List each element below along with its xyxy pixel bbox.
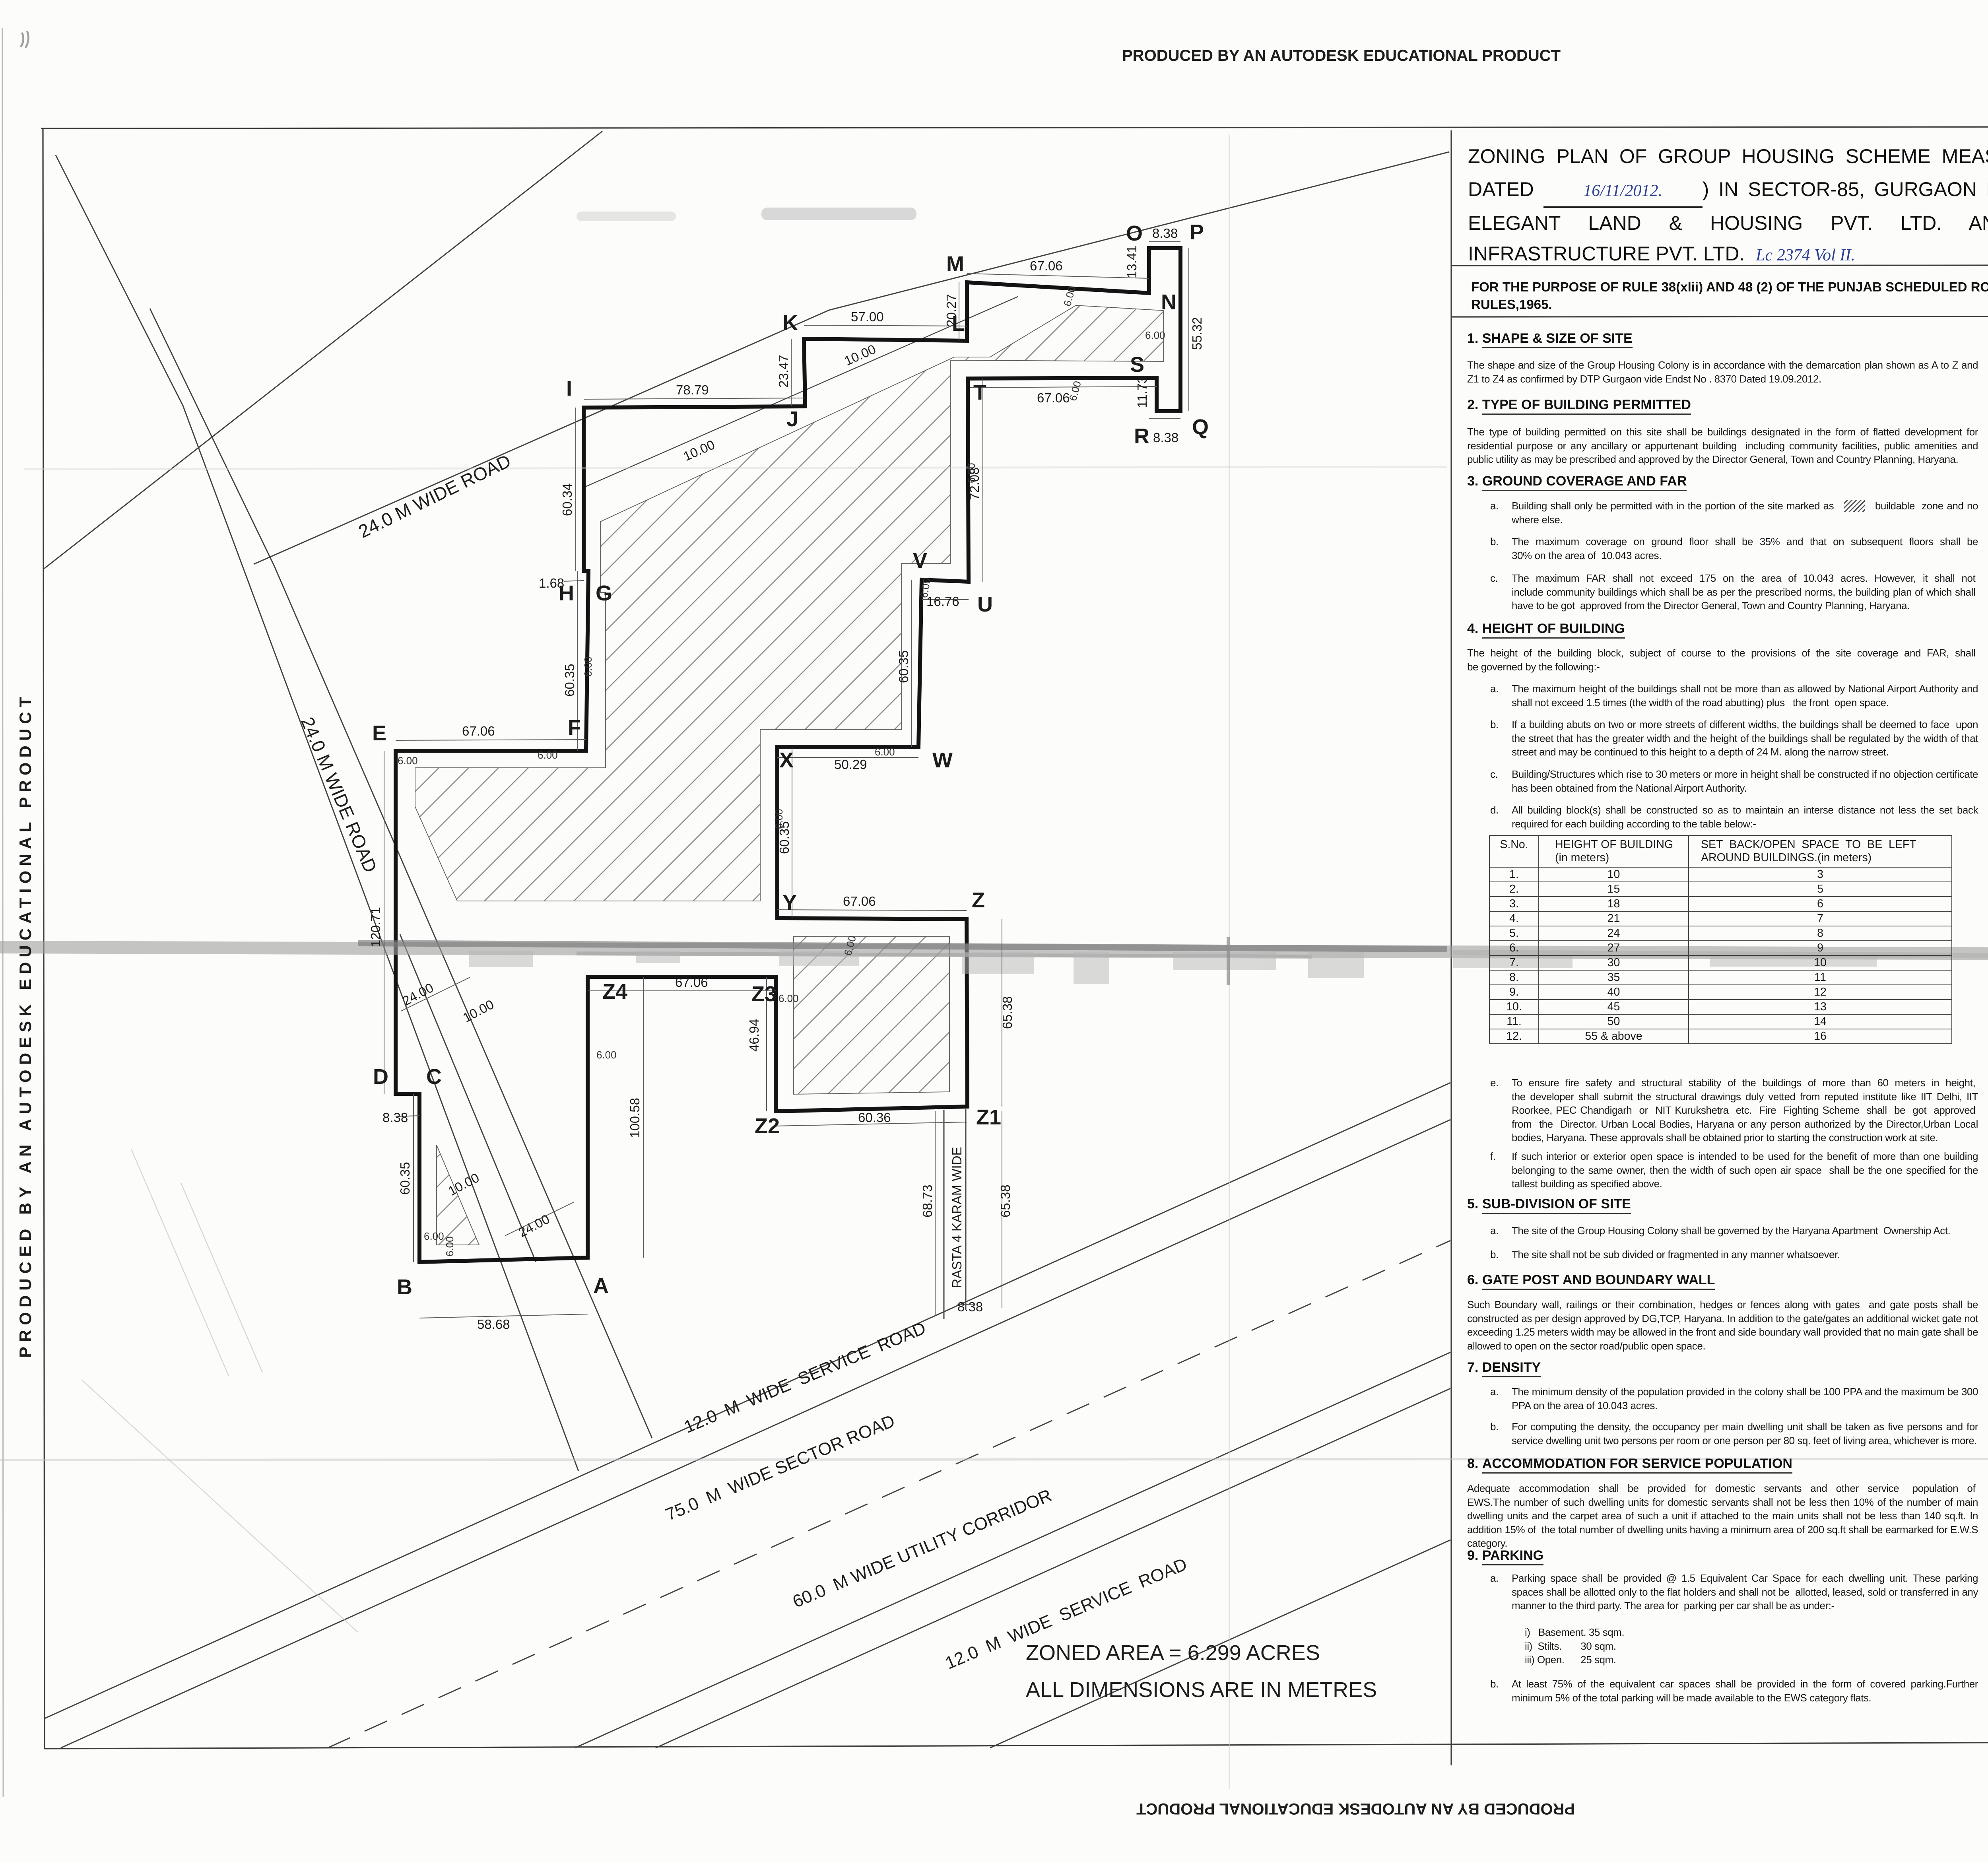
svg-text:13.41: 13.41 bbox=[1124, 245, 1139, 278]
svg-text:6.00: 6.00 bbox=[875, 746, 895, 758]
svg-text:6.00: 6.00 bbox=[596, 1049, 617, 1061]
svg-text:8.38: 8.38 bbox=[1153, 430, 1178, 445]
svg-text:6.00: 6.00 bbox=[1145, 329, 1165, 341]
svg-text:D: D bbox=[373, 1065, 388, 1089]
svg-text:T: T bbox=[973, 381, 986, 404]
svg-text:K: K bbox=[782, 311, 798, 335]
svg-text:23.47: 23.47 bbox=[776, 355, 791, 388]
svg-text:11.73: 11.73 bbox=[1135, 376, 1149, 408]
svg-text:65.38: 65.38 bbox=[1000, 996, 1015, 1029]
svg-text:67.06: 67.06 bbox=[675, 975, 708, 990]
svg-text:Z: Z bbox=[972, 888, 985, 912]
svg-text:10.00: 10.00 bbox=[460, 997, 496, 1025]
svg-text:O: O bbox=[1126, 221, 1143, 245]
svg-text:J: J bbox=[786, 407, 798, 431]
svg-text:65.38: 65.38 bbox=[998, 1184, 1013, 1217]
svg-text:67.06: 67.06 bbox=[843, 894, 876, 909]
svg-text:R: R bbox=[1134, 424, 1149, 448]
svg-text:8.38: 8.38 bbox=[382, 1110, 408, 1125]
svg-text:1.68: 1.68 bbox=[539, 576, 564, 590]
svg-text:Z2: Z2 bbox=[755, 1114, 780, 1138]
svg-text:24.0 M WIDE ROAD: 24.0 M WIDE ROAD bbox=[355, 450, 514, 542]
svg-text:F: F bbox=[568, 716, 581, 740]
svg-text:A: A bbox=[593, 1274, 609, 1298]
svg-text:U: U bbox=[977, 592, 993, 616]
svg-text:W: W bbox=[932, 748, 953, 772]
svg-text:C: C bbox=[426, 1065, 442, 1089]
svg-text:24.0 M WIDE ROAD: 24.0 M WIDE ROAD bbox=[297, 714, 381, 876]
svg-text:RASTA 4 KARAM WIDE: RASTA 4 KARAM WIDE bbox=[949, 1147, 964, 1288]
svg-text:10.00: 10.00 bbox=[842, 342, 878, 368]
svg-text:67.06: 67.06 bbox=[1030, 258, 1063, 273]
svg-text:60.36: 60.36 bbox=[858, 1110, 891, 1125]
svg-text:6.00: 6.00 bbox=[1067, 380, 1083, 402]
svg-text:6.00: 6.00 bbox=[965, 463, 977, 483]
svg-text:67.06: 67.06 bbox=[462, 724, 495, 738]
svg-text:46.94: 46.94 bbox=[747, 1019, 761, 1052]
svg-text:Y: Y bbox=[782, 891, 797, 914]
svg-text:8.38: 8.38 bbox=[1152, 226, 1178, 241]
svg-text:6.00: 6.00 bbox=[582, 656, 594, 677]
svg-text:10.00: 10.00 bbox=[681, 437, 717, 464]
svg-text:N: N bbox=[1161, 290, 1176, 314]
svg-text:6.00: 6.00 bbox=[538, 749, 558, 761]
svg-text:60.34: 60.34 bbox=[560, 483, 575, 516]
svg-text:6.00: 6.00 bbox=[773, 809, 785, 829]
svg-text:6.00: 6.00 bbox=[398, 755, 418, 767]
svg-text:V: V bbox=[913, 549, 927, 573]
svg-text:P: P bbox=[1190, 220, 1204, 244]
svg-text:S: S bbox=[1130, 353, 1144, 377]
svg-text:20.27: 20.27 bbox=[944, 294, 959, 327]
svg-text:24.00: 24.00 bbox=[400, 980, 436, 1008]
svg-text:ZONED AREA = 6.299 ACRES: ZONED AREA = 6.299 ACRES bbox=[1026, 1641, 1320, 1665]
svg-text:120.71: 120.71 bbox=[368, 907, 383, 947]
svg-text:60.35: 60.35 bbox=[562, 664, 577, 697]
svg-text:50.29: 50.29 bbox=[834, 757, 867, 772]
svg-text:60.35: 60.35 bbox=[398, 1162, 412, 1195]
svg-text:6.00: 6.00 bbox=[444, 1236, 456, 1256]
svg-text:X: X bbox=[779, 748, 794, 772]
svg-text:Z1: Z1 bbox=[976, 1105, 1001, 1129]
svg-text:67.06: 67.06 bbox=[1037, 390, 1070, 405]
svg-text:I: I bbox=[566, 377, 572, 400]
svg-text:6.00: 6.00 bbox=[424, 1230, 444, 1242]
svg-text:B: B bbox=[397, 1275, 412, 1299]
svg-text:E: E bbox=[372, 721, 386, 745]
svg-text:57.00: 57.00 bbox=[851, 309, 884, 324]
svg-text:Z3: Z3 bbox=[751, 982, 777, 1006]
svg-text:8.38: 8.38 bbox=[957, 1299, 983, 1314]
svg-text:68.73: 68.73 bbox=[920, 1184, 935, 1217]
svg-text:G: G bbox=[596, 581, 612, 605]
svg-text:60.35: 60.35 bbox=[896, 650, 911, 683]
svg-text:6.00: 6.00 bbox=[779, 992, 799, 1004]
svg-text:M: M bbox=[946, 252, 964, 276]
svg-text:Z4: Z4 bbox=[602, 980, 627, 1004]
svg-text:ALL DIMENSIONS ARE IN METRES: ALL DIMENSIONS ARE IN METRES bbox=[1026, 1678, 1377, 1702]
svg-text:100.58: 100.58 bbox=[627, 1098, 642, 1138]
svg-text:55.32: 55.32 bbox=[1190, 317, 1204, 350]
svg-text:58.68: 58.68 bbox=[477, 1317, 510, 1332]
svg-text:Q: Q bbox=[1192, 415, 1209, 439]
svg-text:16.76: 16.76 bbox=[926, 594, 959, 609]
svg-text:24.00: 24.00 bbox=[516, 1212, 552, 1240]
svg-text:78.79: 78.79 bbox=[676, 382, 709, 397]
